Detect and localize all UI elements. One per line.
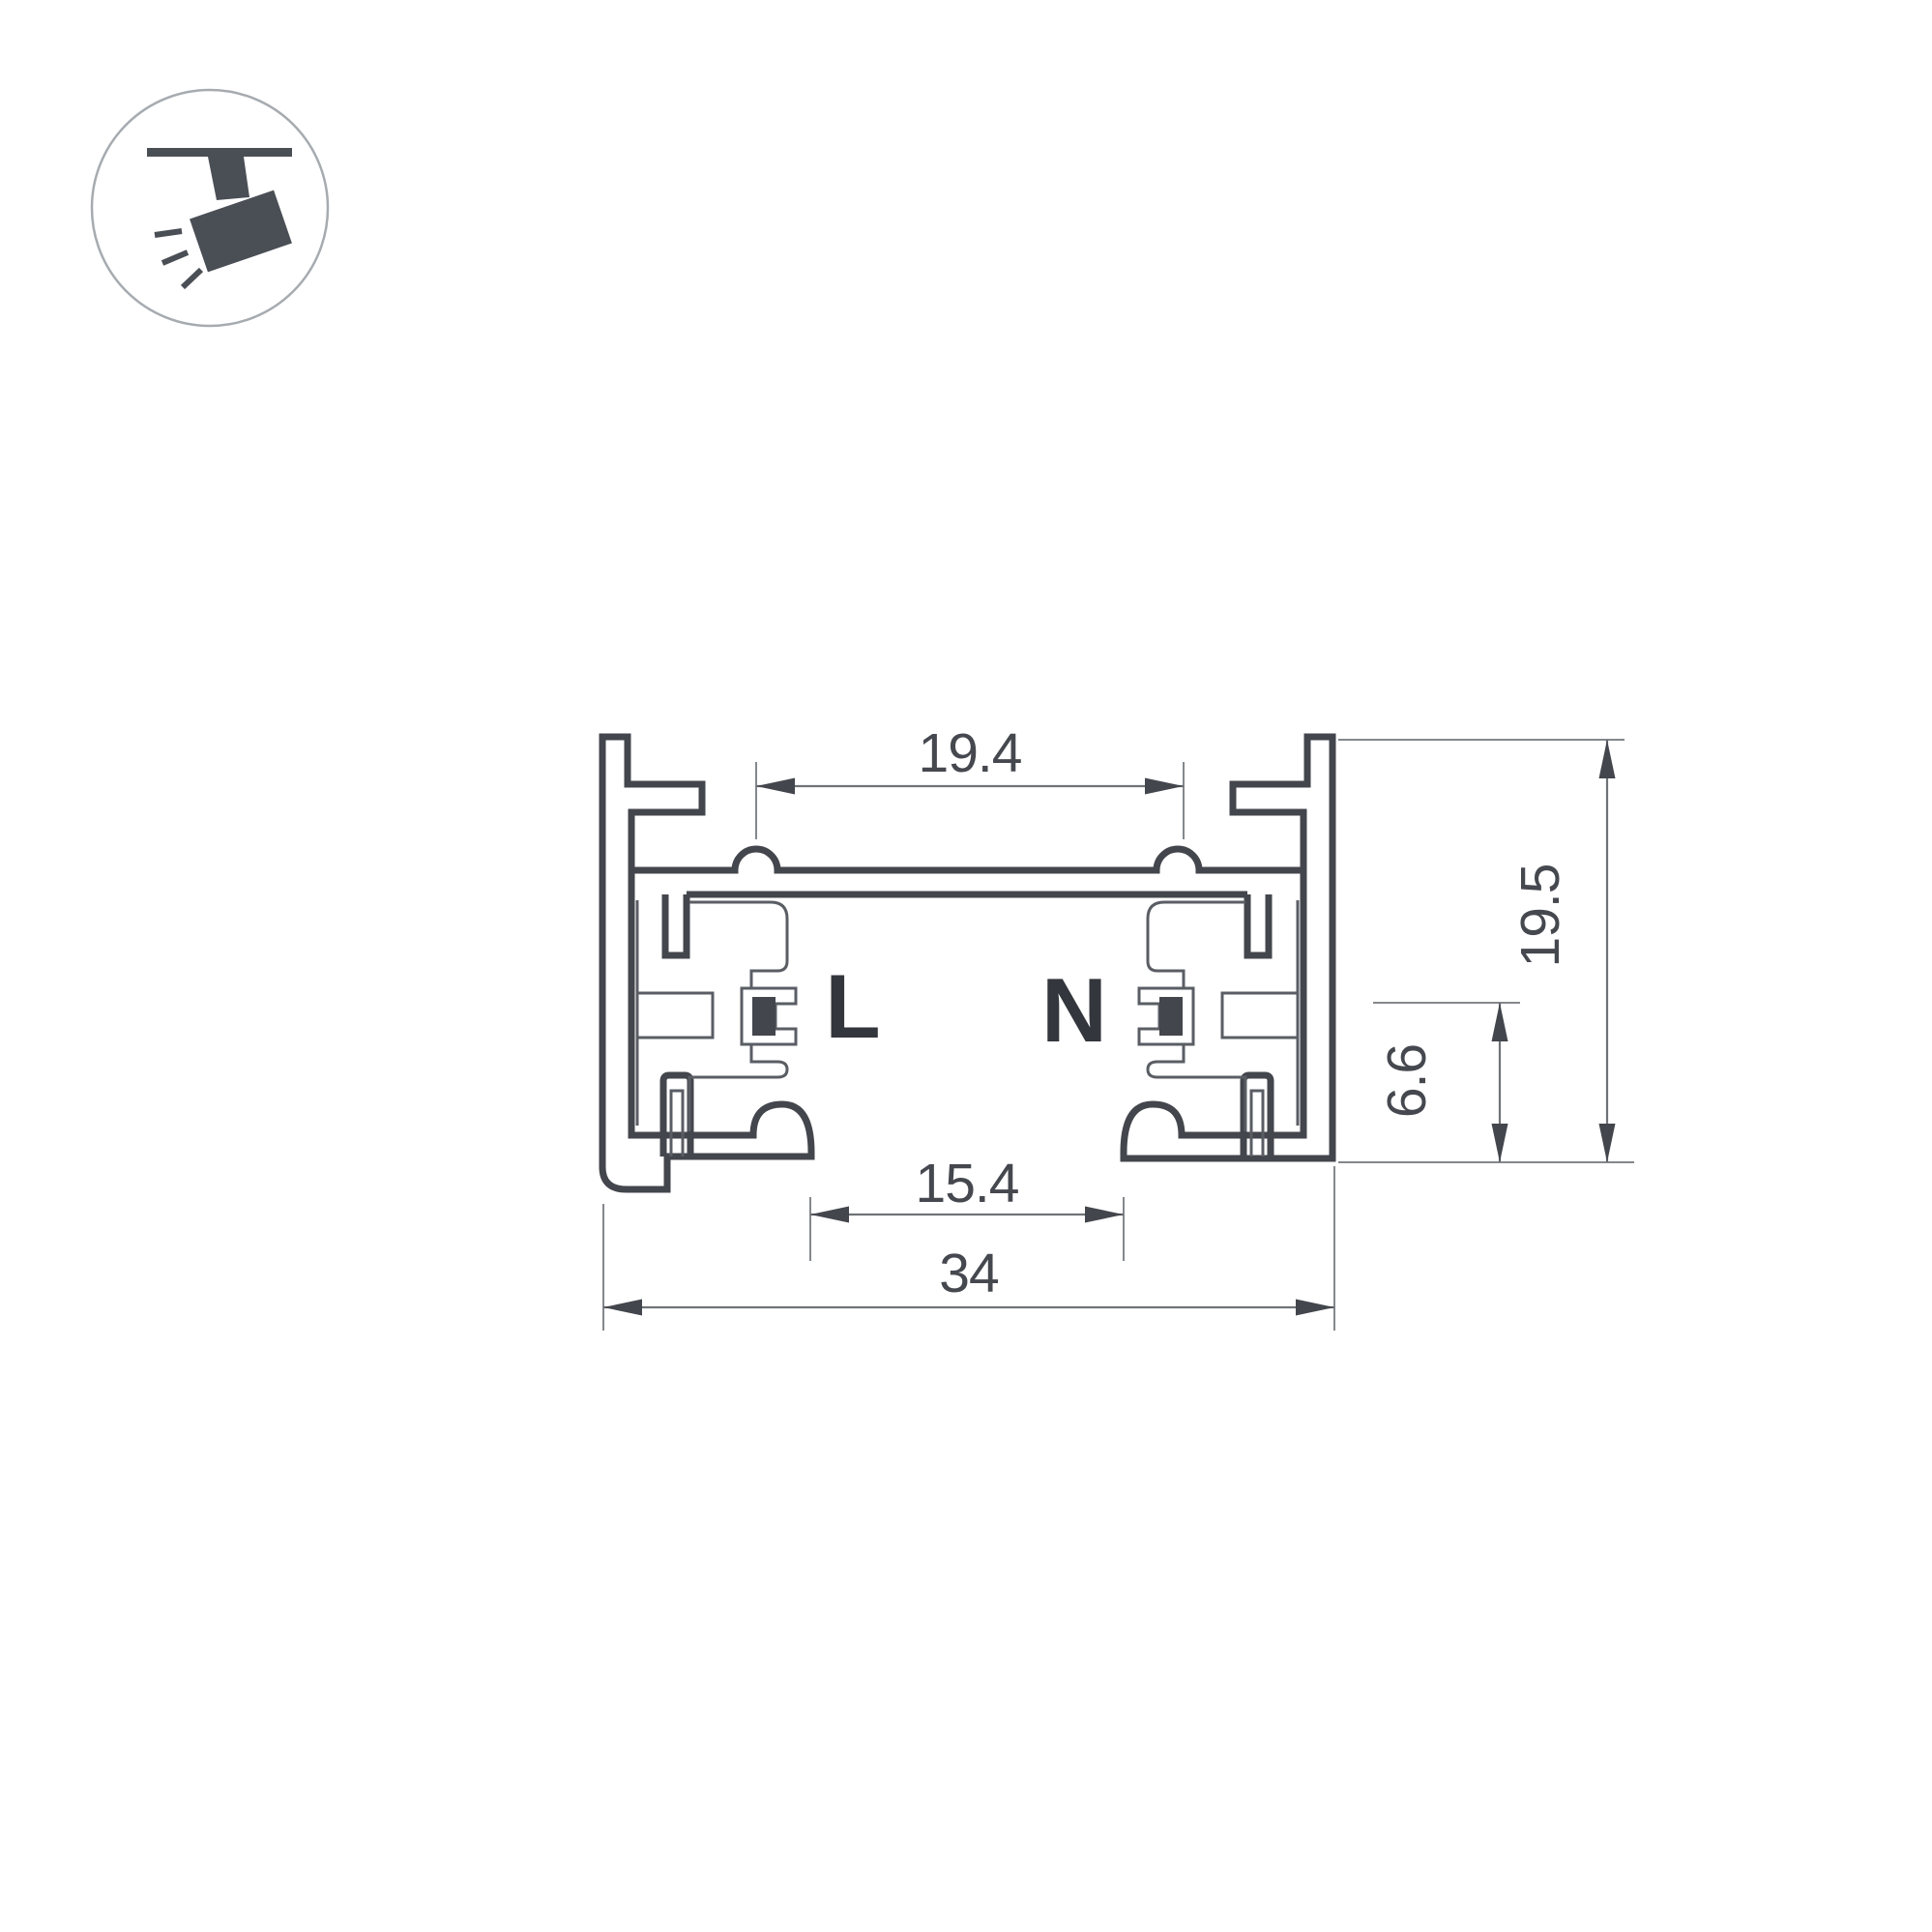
dim-value-overall-height: 19.5 <box>1509 864 1571 968</box>
dim-value-overall-width: 34 <box>939 1243 999 1304</box>
profile-ceiling-rib-right <box>1247 894 1269 955</box>
profile-screw-channel-left-bore <box>671 1091 683 1156</box>
technical-drawing-canvas: L N 19.4 15.4 34 19.5 <box>0 0 1932 1932</box>
icon-track-bar <box>147 148 292 157</box>
dimension-top-groove-width: 19.4 <box>756 722 1184 839</box>
arrowhead-left <box>756 778 795 795</box>
dimension-contact-height: 6.6 <box>1373 1003 1520 1162</box>
arrowhead-top <box>1599 740 1616 778</box>
arrowhead-right <box>1296 1300 1334 1316</box>
dim-value-bottom-opening: 15.4 <box>916 1153 1019 1215</box>
aluminum-profile <box>602 737 1332 1189</box>
profile-screw-channel-right <box>1244 1075 1271 1156</box>
arrowhead-right <box>1145 778 1184 795</box>
label-neutral: N <box>1041 959 1107 1061</box>
dim-value-top-groove: 19.4 <box>919 722 1022 784</box>
dim-value-contact-height: 6.6 <box>1376 1044 1438 1118</box>
arrowhead-left <box>810 1207 849 1223</box>
arrowhead-bottom <box>1599 1124 1616 1162</box>
profile-drawing-svg: L N 19.4 15.4 34 19.5 <box>0 0 1932 1932</box>
conductor-live <box>752 997 776 1036</box>
insulator-left-arm <box>637 993 713 1038</box>
profile-left-wall <box>602 737 811 1189</box>
profile-right-wall <box>1124 737 1332 1158</box>
insulator-right-pocket <box>1184 988 1193 1044</box>
insulator-right-arm <box>1222 993 1298 1038</box>
arrowhead-bottom <box>1492 1124 1508 1162</box>
arrowhead-top <box>1492 1003 1508 1041</box>
conductor-neutral <box>1159 997 1183 1036</box>
arrowhead-left <box>603 1300 642 1316</box>
profile-top-deck <box>631 849 1305 870</box>
spotlight-track-icon <box>92 90 328 326</box>
arrowhead-right <box>1085 1207 1124 1223</box>
icon-circle <box>92 90 328 326</box>
profile-ceiling-rib-left <box>665 894 687 955</box>
profile-screw-channel-left <box>663 1075 690 1156</box>
profile-screw-channel-right-bore <box>1251 1091 1263 1156</box>
label-live: L <box>825 955 880 1057</box>
insulator-left-pocket <box>742 988 751 1044</box>
